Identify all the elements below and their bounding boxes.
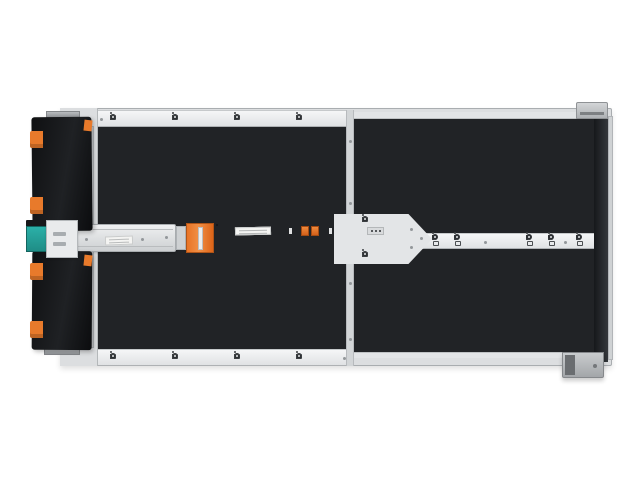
lock-icon <box>526 234 532 240</box>
chassis-right-lip <box>608 116 613 360</box>
cable-arm-clip <box>30 131 43 148</box>
screw <box>349 202 352 205</box>
module-label <box>105 236 133 246</box>
drive-grid-right-bottom <box>354 249 594 352</box>
bottom-right-latch-handle <box>562 352 604 378</box>
ssd-tray-stack <box>216 224 402 252</box>
ssd-orange-clip <box>311 226 319 236</box>
drive-grid-left-top <box>98 127 346 223</box>
right-section-bottom-edge <box>354 352 594 358</box>
screw <box>165 236 168 239</box>
right-section-top-edge <box>354 112 594 119</box>
orange-release-handle <box>186 223 214 253</box>
bottom-latch-rail <box>98 349 348 366</box>
square-icon <box>234 354 240 359</box>
screw <box>349 282 352 285</box>
orange-clip <box>83 120 92 132</box>
screw <box>420 237 423 240</box>
chassis-right-side <box>594 112 608 362</box>
square-icon <box>362 217 368 222</box>
lock-icon <box>548 234 554 240</box>
cable-arm-clip <box>30 263 43 280</box>
cable-arm-clip <box>30 197 43 214</box>
screw <box>349 338 352 341</box>
ssd-orange-clip <box>301 226 309 236</box>
tick-mark <box>289 228 292 234</box>
lock-icon <box>576 234 582 240</box>
drive-grid-left-bottom <box>98 254 346 348</box>
orange-clip <box>83 255 92 267</box>
square-icon <box>172 354 178 359</box>
ssd-tray <box>216 224 218 226</box>
lock-icon <box>432 234 438 240</box>
screw <box>349 140 352 143</box>
screw <box>484 241 487 244</box>
screw <box>141 238 144 241</box>
top-latch-rail <box>98 110 348 127</box>
top-right-latch-handle <box>576 102 608 119</box>
screw <box>410 228 413 231</box>
teal-cable-connector <box>26 226 48 252</box>
square-icon <box>110 115 116 120</box>
screw <box>410 246 413 249</box>
ssd-status-label <box>367 227 384 235</box>
square-icon <box>296 354 302 359</box>
screw <box>100 118 103 121</box>
product-photo-storage-enclosure <box>0 0 640 480</box>
screw <box>85 238 88 241</box>
tick-mark <box>329 228 332 234</box>
square-icon <box>362 252 368 257</box>
square-icon <box>296 115 302 120</box>
screw <box>564 241 567 244</box>
square-icon <box>234 115 240 120</box>
module-connector-panel <box>176 226 186 250</box>
square-icon <box>172 115 178 120</box>
square-icon <box>110 354 116 359</box>
cable-arm-clip <box>30 321 43 338</box>
side-io-module <box>46 220 78 258</box>
ssd-label <box>235 227 271 236</box>
lock-icon <box>454 234 460 240</box>
